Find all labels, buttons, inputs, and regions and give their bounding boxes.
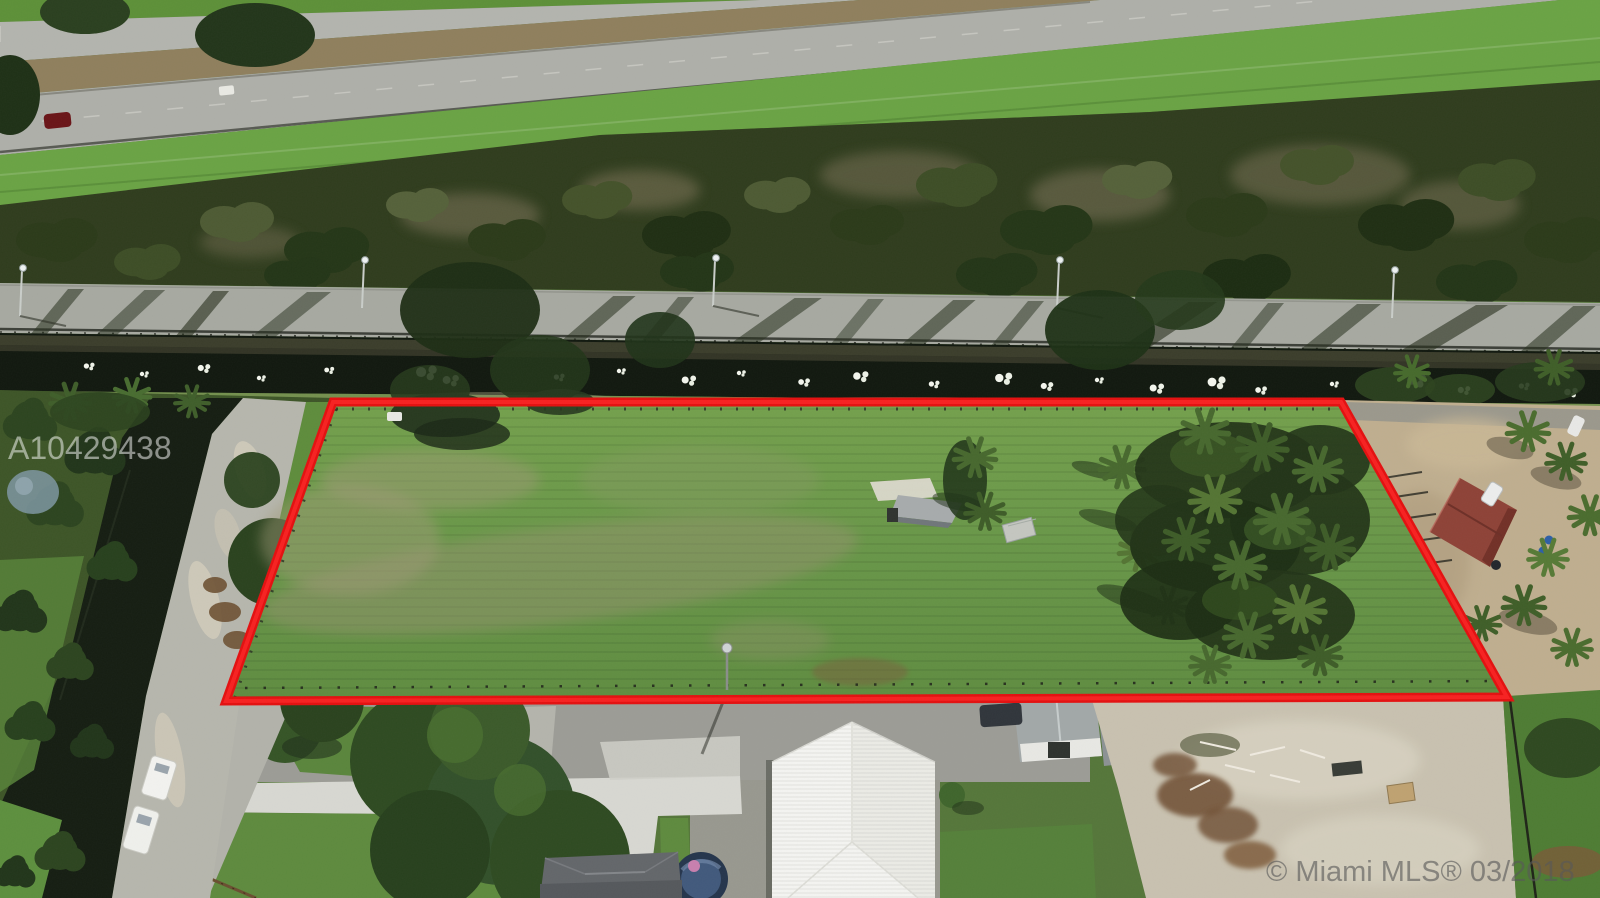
aerial-photo: A10429438 © Miami MLS® 03/2018 [0,0,1600,898]
photo-grain-overlay [0,0,1600,898]
